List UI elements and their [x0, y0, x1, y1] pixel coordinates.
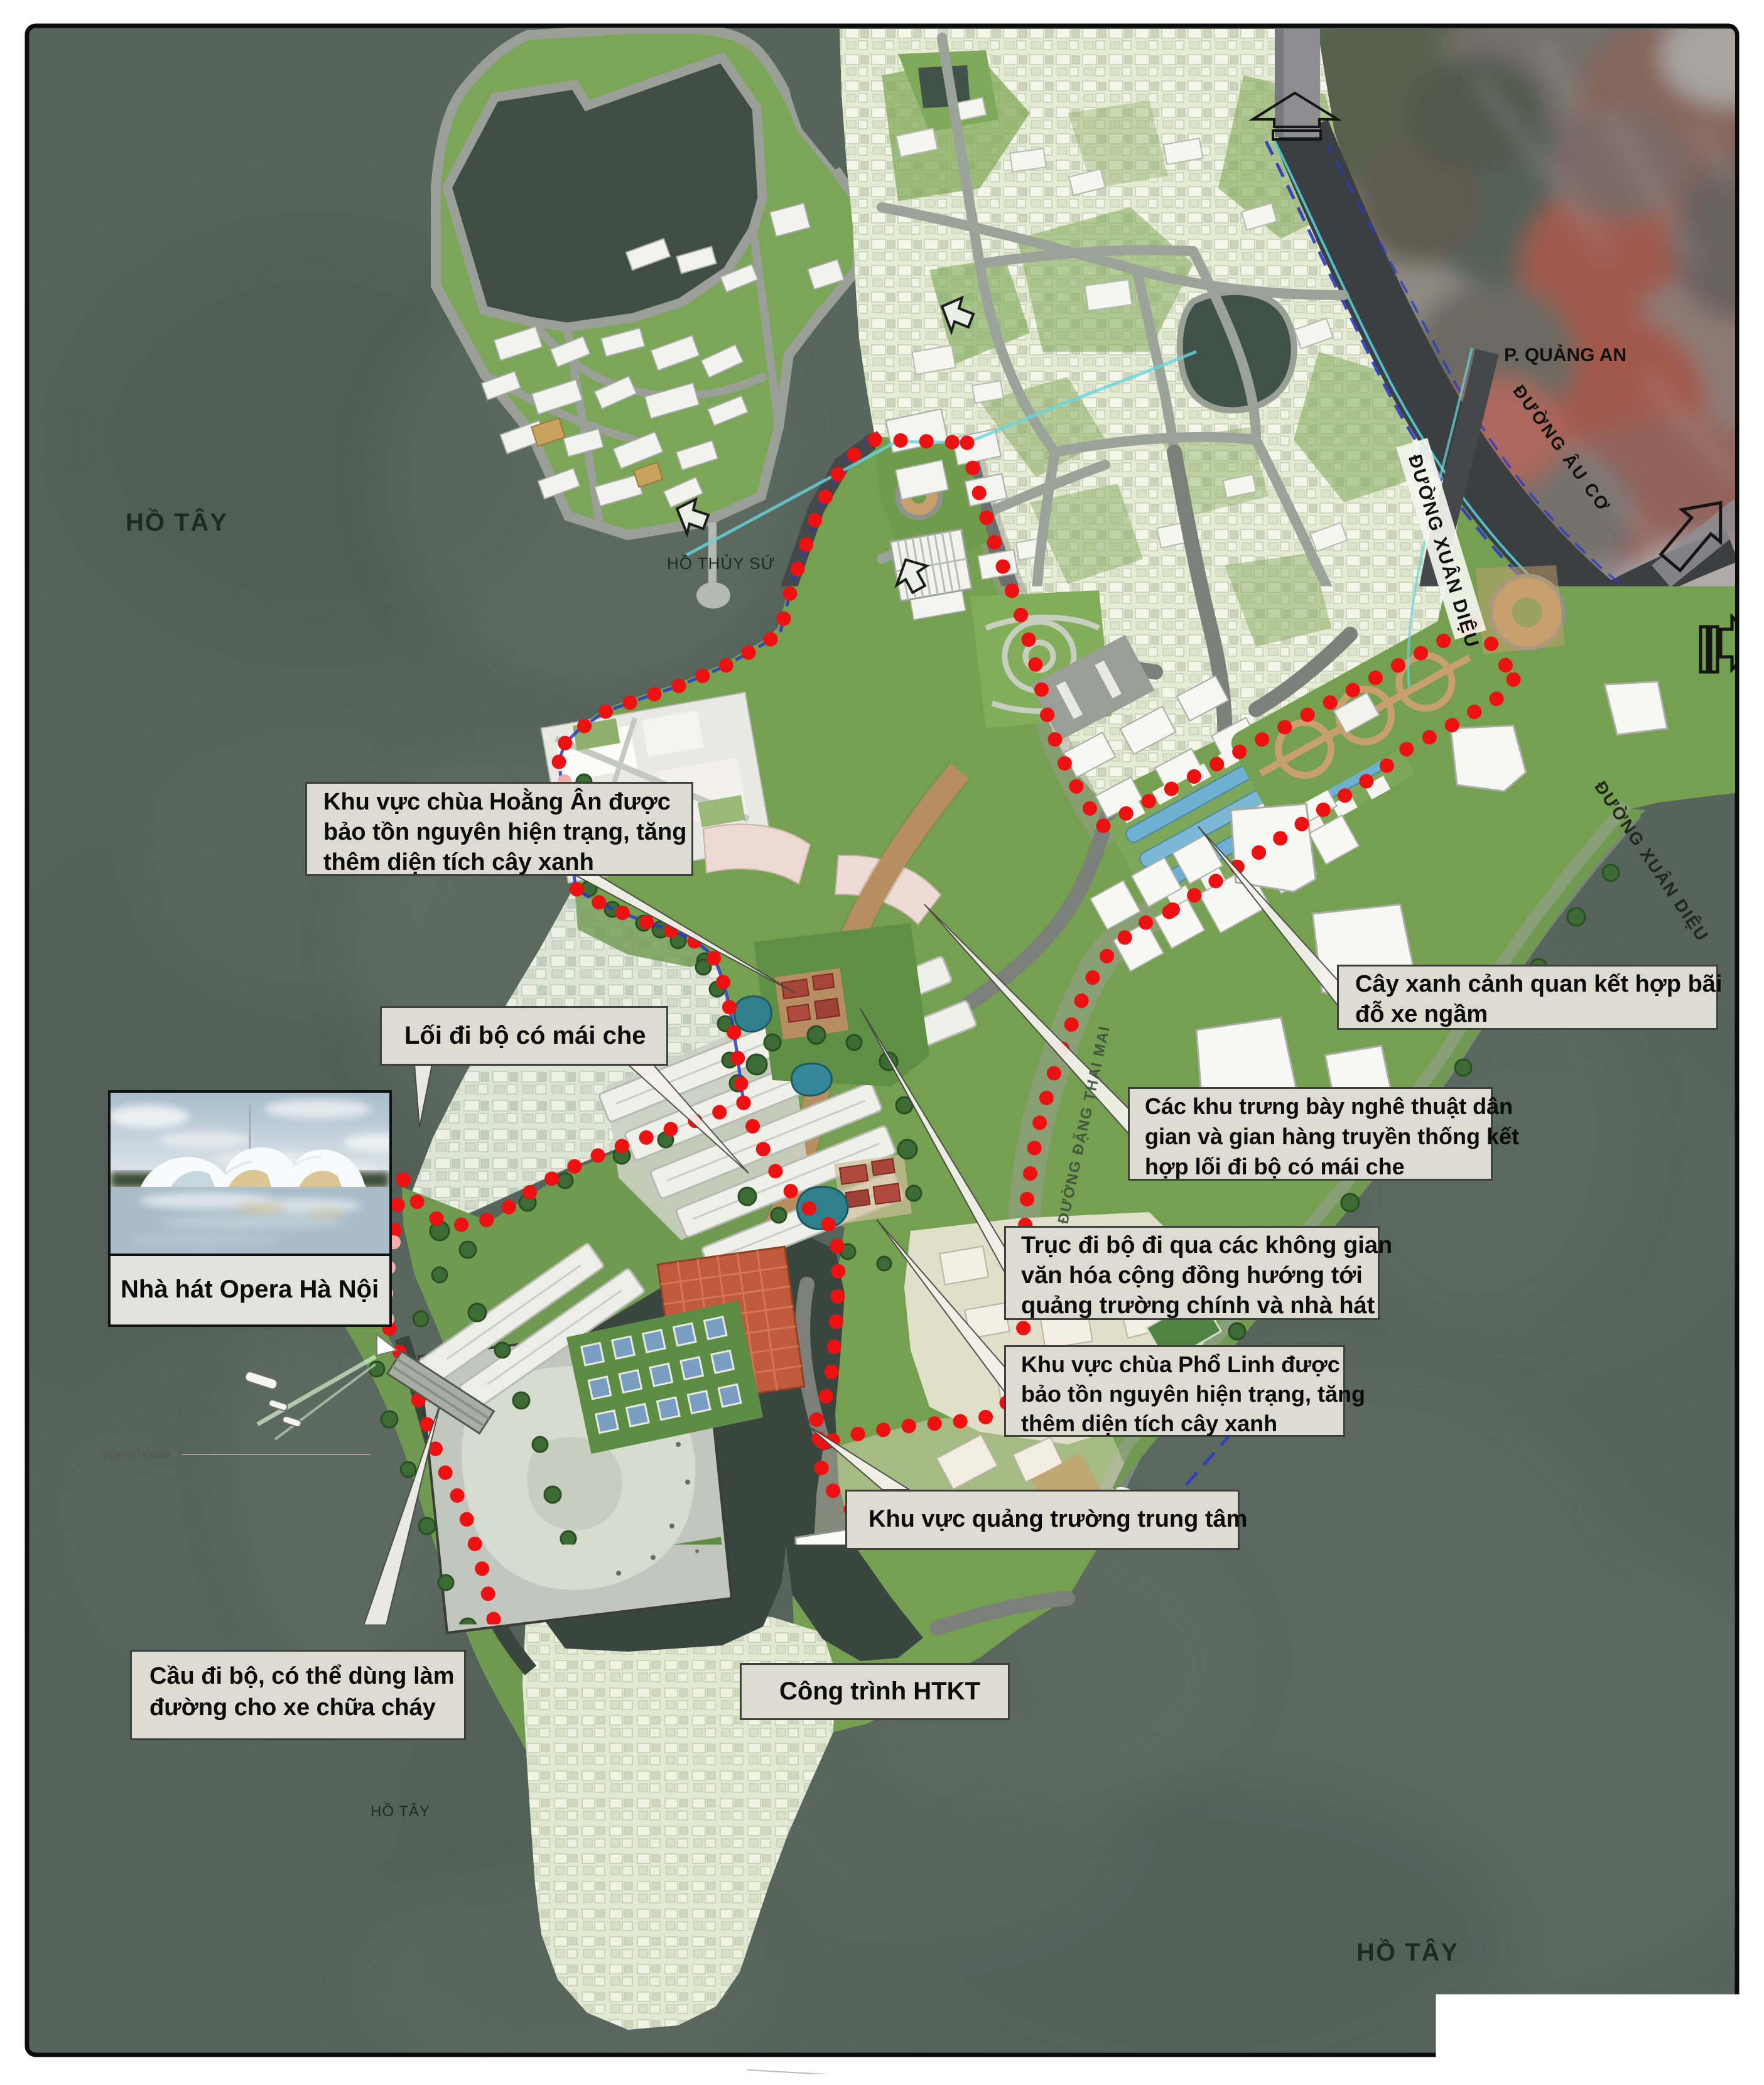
svg-text:opera house: opera house: [104, 1448, 170, 1461]
svg-text:P. QUẢNG AN: P. QUẢNG AN: [1504, 344, 1626, 366]
svg-text:HỒ TÂY: HỒ TÂY: [371, 1802, 430, 1820]
svg-text:HỒ TÂY: HỒ TÂY: [126, 507, 228, 536]
svg-text:HỒ TÂY: HỒ TÂY: [1356, 1937, 1459, 1966]
svg-text:HỒ THỦY SỨ: HỒ THỦY SỨ: [667, 553, 776, 573]
svg-text:Nhà hát Opera Hà Nội: Nhà hát Opera Hà Nội: [121, 1275, 379, 1303]
